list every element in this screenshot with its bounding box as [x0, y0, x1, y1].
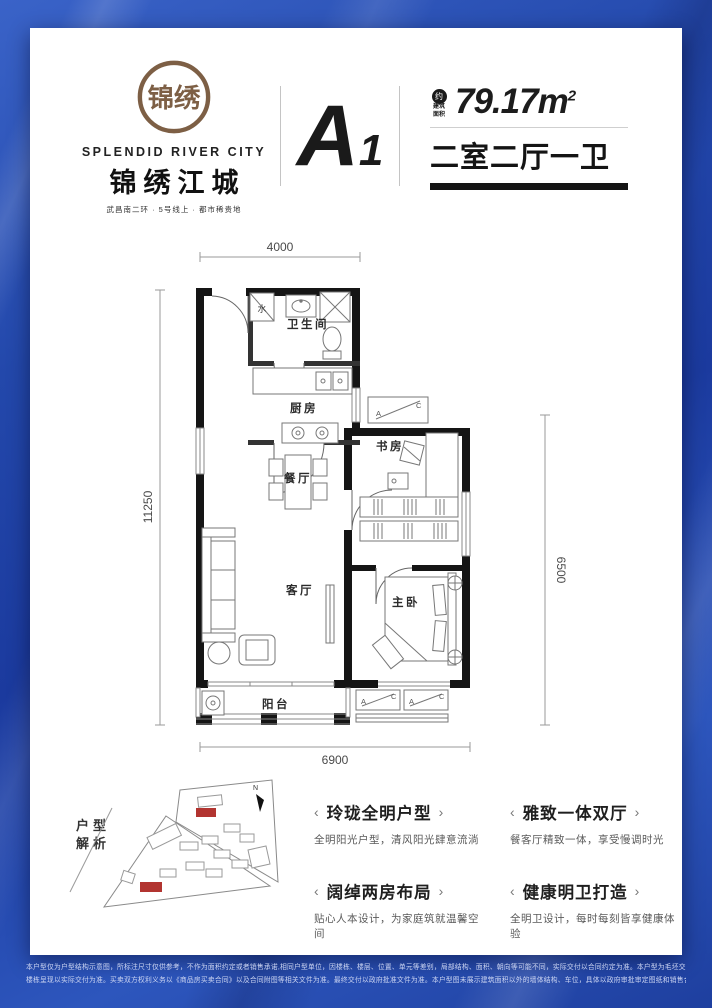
chevron-right-icon: › [635, 804, 641, 820]
feature-desc: 贴心人本设计，为家庭筑就温馨空间 [314, 911, 484, 941]
disclaimer: 本户型仅为户型结构示意图，所标注尺寸仅供参考，不作为面积约定或者销售承诺,相同户… [26, 962, 686, 987]
brand-tagline: 武昌南二环 · 5号线上 · 都市稀贵地 [68, 204, 280, 215]
site-label-1: 户型 [76, 818, 110, 833]
ac-label: A [376, 409, 381, 418]
brand-logo-block: 锦绣 SPLENDID RIVER CITY 锦绣江城 武昌南二环 · 5号线上… [68, 58, 280, 215]
header: 锦绣 SPLENDID RIVER CITY 锦绣江城 武昌南二环 · 5号线上… [30, 56, 682, 216]
approx-area-badge: 约 建筑 面积 [430, 89, 448, 122]
balcony-fixtures [202, 691, 224, 715]
layout-underline [430, 183, 628, 190]
approx-icon: 约 [432, 89, 447, 104]
poster-page: 锦绣 SPLENDID RIVER CITY 锦绣江城 武昌南二环 · 5号线上… [0, 0, 712, 1008]
feature-item: ‹玲珑全明户型› 全明阳光户型，清风阳光肆意流淌 [314, 800, 484, 847]
north-arrow-icon: N [253, 785, 264, 812]
floor-plan: 4000 11250 6500 6900 [36, 235, 676, 765]
brand-seal-icon: 锦绣 [135, 58, 213, 136]
unit-code-sub: 1 [359, 126, 383, 175]
feature-desc: 全明阳光户型，清风阳光肆意流淌 [314, 832, 484, 847]
chevron-right-icon: › [439, 804, 445, 820]
feature-title: 健康明卫打造 [523, 879, 628, 903]
unit-code-block: A1 [281, 93, 399, 179]
ac-label: A [409, 697, 414, 706]
room-label-balcony: 阳台 [262, 697, 290, 711]
area-label-2: 面积 [433, 112, 445, 120]
unit-code: A [297, 88, 359, 184]
header-divider-right [399, 86, 400, 186]
feature-title: 阔绰两房布局 [327, 879, 432, 903]
chevron-right-icon: › [635, 883, 641, 899]
chevron-left-icon: ‹ [314, 883, 320, 899]
disclaimer-line-2: 楼栋呈现以实际交付为准。买卖双方权利义务以《商品房买卖合同》以及合同附图等相关文… [26, 975, 686, 988]
ac-label: A [361, 697, 366, 706]
room-label-master: 主卧 [392, 595, 420, 609]
svg-text:锦绣: 锦绣 [148, 82, 201, 112]
feature-item: ‹雅致一体双厅› 餐客厅精致一体，享受慢调时光 [510, 800, 680, 847]
room-label-study: 书房 [376, 439, 404, 453]
dim-right: 6500 [554, 557, 568, 584]
dim-bottom: 6900 [322, 753, 349, 765]
living-furniture [202, 528, 334, 665]
dim-left: 11250 [141, 490, 155, 523]
site-buildings [121, 795, 270, 884]
area-rule [430, 127, 628, 128]
water-meter-label: 水 [257, 303, 266, 314]
chevron-left-icon: ‹ [510, 804, 516, 820]
feature-title: 玲珑全明户型 [327, 800, 432, 824]
feature-item: ‹阔绰两房布局› 贴心人本设计，为家庭筑就温馨空间 [314, 879, 484, 941]
floorplan-card: 锦绣 SPLENDID RIVER CITY 锦绣江城 武昌南二环 · 5号线上… [30, 28, 682, 955]
area-value: 79.17m2 [455, 82, 575, 122]
feature-list: ‹玲珑全明户型› 全明阳光户型，清风阳光肆意流淌 ‹雅致一体双厅› 餐客厅精致一… [314, 800, 680, 941]
room-label-living: 客厅 [285, 583, 314, 597]
room-label-kitchen: 厨房 [290, 401, 318, 415]
ac-label: C [439, 692, 445, 701]
dim-top: 4000 [267, 240, 294, 254]
chevron-right-icon: › [439, 883, 445, 899]
svg-text:N: N [253, 785, 258, 792]
chevron-left-icon: ‹ [510, 883, 516, 899]
bedroom-furniture [372, 573, 462, 669]
ac-label: C [391, 692, 397, 701]
room-label-bathroom: 卫生间 [287, 317, 329, 331]
feature-desc: 餐客厅精致一体，享受慢调时光 [510, 832, 680, 847]
disclaimer-line-1: 本户型仅为户型结构示意图，所标注尺寸仅供参考，不作为面积约定或者销售承诺,相同户… [26, 962, 686, 975]
wardrobe [360, 497, 458, 541]
room-label-dining: 餐厅 [283, 471, 312, 485]
feature-desc: 全明卫设计，每时每刻皆享健康体验 [510, 911, 680, 941]
site-highlighted-buildings [140, 808, 216, 892]
site-label-2: 解析 [75, 836, 110, 851]
layout-text: 二室二厅一卫 [430, 134, 628, 176]
site-plan: 户型 解析 [48, 770, 298, 955]
chevron-left-icon: ‹ [314, 804, 320, 820]
ac-label: C [416, 401, 422, 410]
brand-name-en: SPLENDID RIVER CITY [68, 145, 280, 159]
feature-title: 雅致一体双厅 [523, 800, 628, 824]
area-label-1: 建筑 [433, 104, 445, 112]
brand-name-cn: 锦绣江城 [68, 161, 280, 200]
unit-info-block: 约 建筑 面积 79.17m2 二室二厅一卫 [430, 82, 628, 190]
feature-item: ‹健康明卫打造› 全明卫设计，每时每刻皆享健康体验 [510, 879, 680, 941]
